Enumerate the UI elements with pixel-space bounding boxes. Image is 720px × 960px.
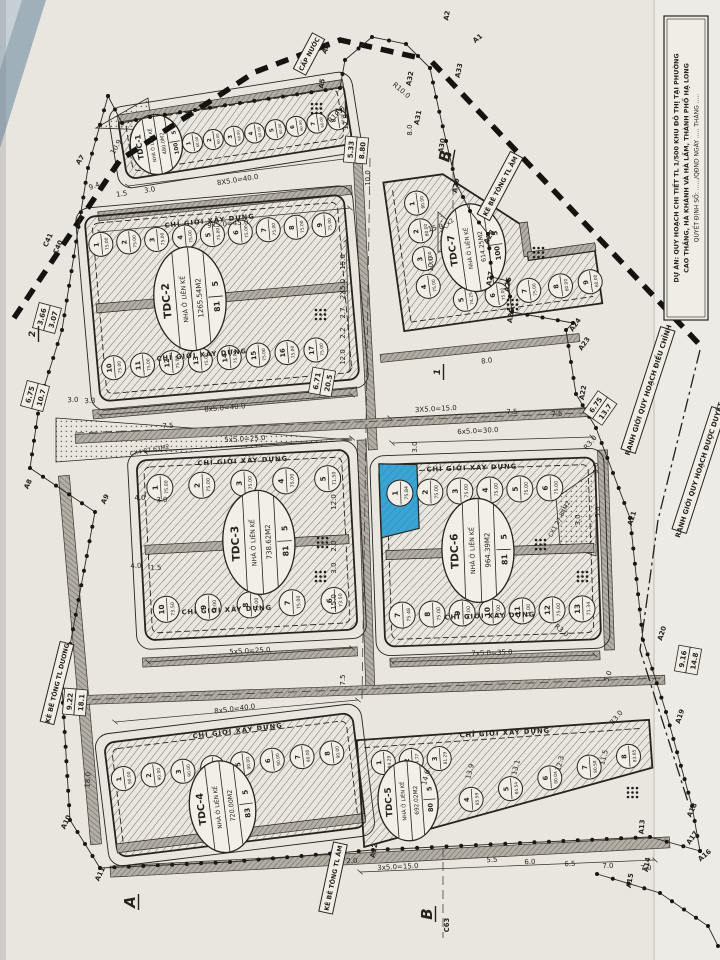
dimension-label: 5.5 — [486, 856, 498, 865]
svg-text:8.80: 8.80 — [358, 142, 367, 160]
svg-text:TDC-6: TDC-6 — [448, 533, 461, 569]
tree-dots — [315, 571, 327, 583]
dimension-label: 3.3 — [84, 397, 96, 406]
svg-text:75.00: 75.00 — [187, 230, 194, 243]
svg-text:75.00: 75.00 — [464, 484, 470, 498]
svg-text:75.00: 75.00 — [261, 348, 268, 361]
svg-text:7: 7 — [283, 600, 292, 605]
svg-text:71.34: 71.34 — [586, 602, 592, 616]
svg-text:3: 3 — [451, 489, 460, 494]
boundary-point-label: A13 — [637, 819, 646, 835]
site-plan-drawing: 160.00260.00360.00460.00560.00660.00760.… — [0, 0, 720, 960]
dimension-label: 10.0 — [364, 170, 372, 186]
lot-marker: 675.00 — [536, 474, 563, 501]
dimension-label: 4.0 — [130, 562, 142, 571]
svg-text:QUYẾT ĐỊNH SỐ: ....../QĐND NGÀ: QUYẾT ĐỊNH SỐ: ....../QĐND NGÀY ..... TH… — [693, 94, 701, 243]
svg-text:DỰ ÁN: QUY HOẠCH CHI TIẾT TL 1: DỰ ÁN: QUY HOẠCH CHI TIẾT TL 1/500 KHU Đ… — [671, 53, 681, 282]
svg-text:5.33: 5.33 — [346, 141, 355, 159]
svg-text:10: 10 — [157, 604, 167, 614]
svg-text:9.22: 9.22 — [65, 693, 74, 711]
svg-text:12: 12 — [543, 605, 552, 615]
dimension-label: 8.0 — [481, 356, 493, 365]
tree-dots — [311, 103, 323, 115]
dimension-label: 7.5 — [551, 410, 563, 419]
dimension-label: 7.5 — [506, 408, 518, 417]
svg-text:75.48: 75.48 — [406, 608, 412, 622]
svg-text:5: 5 — [211, 281, 220, 287]
svg-text:75.00: 75.00 — [327, 218, 334, 231]
svg-text:75.00: 75.00 — [436, 607, 442, 621]
svg-text:75.00: 75.00 — [215, 227, 222, 240]
svg-text:81: 81 — [212, 301, 222, 313]
svg-text:18.1: 18.1 — [77, 694, 86, 712]
boxed-dimension: 6.7120.5 — [308, 367, 335, 397]
dimension-label: 7.0 — [602, 862, 614, 871]
lot-marker: 575.00 — [506, 475, 533, 502]
lot-marker: 275.00 — [416, 479, 443, 506]
dimension-label: 6.5 — [564, 860, 576, 869]
tree-dots — [533, 247, 545, 259]
svg-text:85.59: 85.59 — [474, 792, 481, 805]
svg-text:75.00: 75.00 — [556, 603, 562, 617]
dimension-label: 6.0 — [524, 858, 536, 867]
svg-text:1: 1 — [335, 107, 345, 113]
dimension-label: 3.0 — [574, 514, 582, 525]
dimension-label: 5.0 — [594, 506, 602, 517]
svg-text:81.29: 81.29 — [442, 751, 449, 764]
svg-text:75.00: 75.00 — [206, 478, 213, 492]
svg-text:4: 4 — [276, 478, 285, 483]
svg-text:2: 2 — [192, 483, 201, 488]
dimension-label: 2.0 — [346, 857, 358, 866]
svg-text:75.00: 75.00 — [104, 237, 111, 250]
dimension-label: 15.0 — [330, 594, 338, 610]
boxed-dimension: 5.338.80 — [343, 136, 368, 164]
svg-text:CAO THẮNG, HÀ KHÁNH VÀ HÀ LẦM,: CAO THẮNG, HÀ KHÁNH VÀ HÀ LẦM, THÀNH PHỐ… — [681, 63, 691, 273]
lot-marker: 1371.34 — [569, 595, 596, 622]
svg-text:6: 6 — [541, 485, 550, 490]
title-block: DỰ ÁN: QUY HOẠCH CHI TIẾT TL 1/500 KHU Đ… — [664, 16, 708, 320]
svg-text:75.00: 75.00 — [524, 482, 530, 496]
lot-marker: 875.00 — [419, 601, 446, 628]
tree-dots — [627, 787, 639, 799]
svg-text:2: 2 — [421, 490, 430, 495]
svg-text:75.00: 75.00 — [299, 220, 306, 233]
svg-text:5: 5 — [499, 534, 508, 540]
block-tdc-6: 175.84275.00375.00475.00575.00675.00775.… — [370, 448, 611, 656]
dimension-label: 7x5.0=35.0 — [471, 648, 512, 657]
dimension-label: 2.0 — [330, 540, 338, 551]
svg-text:75.00: 75.00 — [554, 481, 560, 495]
svg-text:TDC-5: TDC-5 — [383, 787, 395, 817]
svg-text:A: A — [121, 896, 139, 909]
tree-dots — [317, 537, 329, 549]
svg-text:75.00: 75.00 — [319, 343, 326, 356]
dimension-label: 3.0 — [330, 562, 338, 573]
svg-text:73.50: 73.50 — [170, 602, 177, 616]
svg-text:75.00: 75.00 — [247, 476, 254, 490]
boundary-point-label: C63 — [443, 918, 451, 933]
svg-text:80.04: 80.04 — [553, 771, 560, 784]
dimension-label: 1.5 — [150, 564, 162, 573]
dimension-label: 10.0 — [427, 256, 435, 272]
tree-dots — [315, 309, 327, 321]
svg-text:84.54: 84.54 — [513, 782, 520, 795]
dimension-label: 12.0 — [339, 349, 347, 365]
svg-text:964.39M2: 964.39M2 — [483, 532, 492, 567]
dimension-label: 15.0 — [339, 254, 347, 270]
lot-marker: 175.84 — [386, 480, 413, 507]
svg-text:B: B — [418, 908, 436, 919]
tree-dots — [535, 539, 547, 551]
dimension-label: 2.2 — [339, 327, 347, 338]
svg-text:81: 81 — [500, 554, 509, 565]
lot-marker: 1275.00 — [539, 596, 566, 623]
dimension-label: 3.0 — [67, 396, 79, 405]
svg-text:75.84: 75.84 — [404, 486, 410, 500]
svg-text:15: 15 — [250, 350, 259, 360]
svg-text:83.65: 83.65 — [631, 749, 638, 762]
dimension-label: 12.0 — [330, 494, 338, 510]
svg-text:80: 80 — [426, 802, 435, 812]
svg-text:75.00: 75.00 — [494, 483, 500, 497]
svg-text:75.00: 75.00 — [243, 225, 250, 238]
dimension-label: 18.0 — [83, 772, 92, 788]
site-plan-document: 160.00260.00360.00460.00560.00660.00760.… — [0, 0, 720, 960]
svg-text:8: 8 — [423, 612, 432, 617]
svg-text:11: 11 — [134, 360, 143, 370]
dimension-label: 7.5 — [339, 674, 347, 685]
svg-text:75.00: 75.00 — [164, 480, 171, 494]
svg-text:75.00: 75.00 — [159, 232, 166, 245]
svg-text:75.00: 75.00 — [132, 235, 139, 248]
svg-text:5: 5 — [318, 476, 327, 481]
svg-text:71.50: 71.50 — [331, 471, 338, 485]
svg-text:5: 5 — [511, 486, 520, 491]
dimension-label: 3.0 — [592, 462, 600, 473]
svg-text:75.00: 75.00 — [116, 360, 123, 373]
svg-text:7: 7 — [393, 613, 402, 618]
section-mark: B — [418, 906, 436, 922]
svg-text:83: 83 — [242, 807, 252, 818]
svg-text:1: 1 — [391, 491, 400, 496]
svg-text:1: 1 — [151, 485, 160, 490]
svg-text:TDC-3: TDC-3 — [229, 526, 243, 562]
svg-text:3: 3 — [234, 481, 243, 486]
dimension-label: 3.0 — [411, 441, 419, 452]
dimension-label: 2.7 — [339, 307, 347, 318]
svg-text:2: 2 — [28, 331, 38, 337]
svg-text:16: 16 — [278, 348, 287, 358]
dimension-label: 7.5 — [162, 422, 174, 431]
svg-text:75.00: 75.00 — [271, 222, 278, 235]
section-mark: A — [121, 894, 139, 910]
boxed-dimension: 9.2218.1 — [62, 688, 87, 716]
svg-text:75.00: 75.00 — [289, 474, 296, 488]
svg-text:75.00: 75.00 — [145, 358, 152, 371]
svg-text:17: 17 — [307, 345, 316, 355]
lot-marker: 775.48 — [389, 602, 416, 629]
boxed-dimension: 9.1614.8 — [674, 645, 701, 675]
svg-text:75.00: 75.00 — [296, 595, 303, 609]
svg-text:5: 5 — [280, 525, 289, 531]
svg-text:75.00: 75.00 — [290, 345, 297, 358]
svg-text:81: 81 — [281, 545, 291, 556]
svg-text:10: 10 — [105, 363, 114, 373]
svg-text:13: 13 — [573, 604, 582, 614]
tree-dots — [577, 571, 589, 583]
dimension-label: 2X5.0 — [339, 279, 347, 299]
dimension-label: 8.0 — [406, 124, 414, 135]
svg-text:73.50: 73.50 — [338, 593, 345, 607]
dimension-label: 4.0 — [134, 494, 146, 503]
svg-text:4: 4 — [481, 487, 490, 492]
svg-text:75.00: 75.00 — [434, 485, 440, 499]
svg-text:1: 1 — [433, 369, 443, 375]
dimension-label: 3.0 — [156, 496, 168, 505]
